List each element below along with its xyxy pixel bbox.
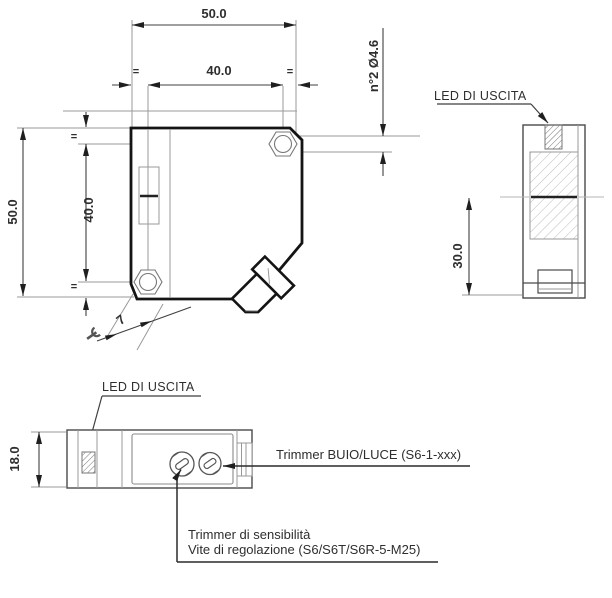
- dim-height-total: 50.0: [5, 192, 21, 232]
- front-led-window: [545, 125, 562, 149]
- dim-bottom-height: 18.0: [7, 439, 23, 479]
- trimmer-sensitivity: [170, 452, 194, 476]
- connector-block: [237, 443, 252, 476]
- trimmer-sensitivity-label: Trimmer di sensibilità: [188, 528, 310, 543]
- trimmer-light-dark-label: Trimmer BUIO/LUCE (S6-1-xxx): [276, 448, 461, 463]
- technical-drawing-canvas: 50.0 40.0 n°2 Ø4.6 50.0 40.0 7 = = = = L…: [0, 0, 612, 598]
- wrench-dim-arrow: [105, 334, 117, 340]
- dim-optical-axis-height: 30.0: [450, 236, 466, 276]
- equal-mark: =: [69, 281, 79, 293]
- equal-mark: =: [69, 131, 79, 143]
- dim-width-total: 50.0: [194, 6, 234, 22]
- adjustment-screw-label: Vite di regolazione (S6/S6T/S6R-5-M25): [188, 543, 420, 558]
- lens-window: [530, 152, 578, 239]
- equal-mark: =: [285, 66, 295, 78]
- holes-note: n°2 Ø4.6: [366, 30, 382, 102]
- dim-width-holes: 40.0: [199, 63, 239, 79]
- dim18-extensions: [31, 432, 66, 487]
- bottom-led-label: LED DI USCITA: [102, 380, 195, 394]
- front-led-leader: [437, 104, 548, 123]
- bottom-led-window: [82, 452, 95, 473]
- trimmer-light-dark: [199, 453, 221, 475]
- front-led-label: LED DI USCITA: [434, 89, 527, 103]
- equal-mark: =: [131, 66, 141, 78]
- wrench-icon: [84, 327, 100, 340]
- dim-height-holes: 40.0: [81, 190, 97, 230]
